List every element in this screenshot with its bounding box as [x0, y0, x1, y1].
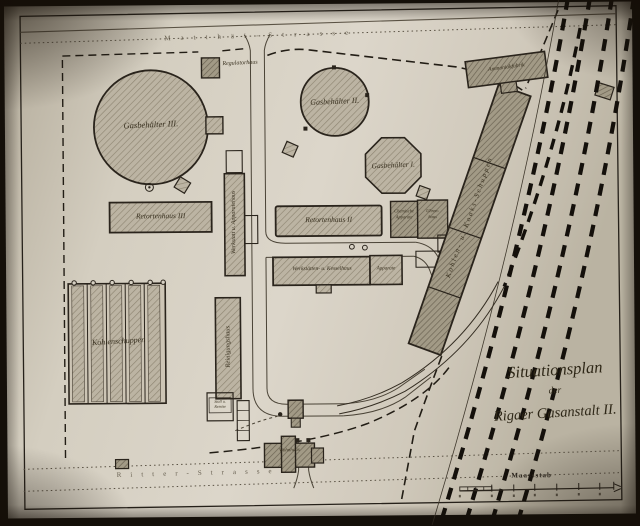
scanned-site-plan-page: Matthäi-Strasse Ritter-Strasse Gasbehält…	[0, 0, 640, 526]
meter-house	[418, 200, 448, 238]
workshop-boiler-house	[273, 257, 370, 286]
chemical-apparatus-building	[391, 201, 418, 237]
regulator-house	[201, 58, 219, 78]
retort-house-3	[110, 202, 212, 233]
plan-scene: Matthäi-Strasse Ritter-Strasse Gasbehält…	[0, 0, 640, 526]
street-side-shed	[116, 460, 129, 469]
gate-post	[306, 438, 310, 442]
lamp-post-dot	[278, 412, 282, 416]
site-plan-drawing	[0, 0, 640, 526]
apparatus-annex	[370, 255, 402, 284]
workshop-apparatus-building	[224, 174, 245, 276]
purifier-house	[215, 298, 241, 399]
well-dot	[148, 186, 150, 188]
boiler-stub	[316, 285, 331, 293]
coal-shed	[68, 280, 166, 404]
retort-house-2	[276, 206, 382, 237]
